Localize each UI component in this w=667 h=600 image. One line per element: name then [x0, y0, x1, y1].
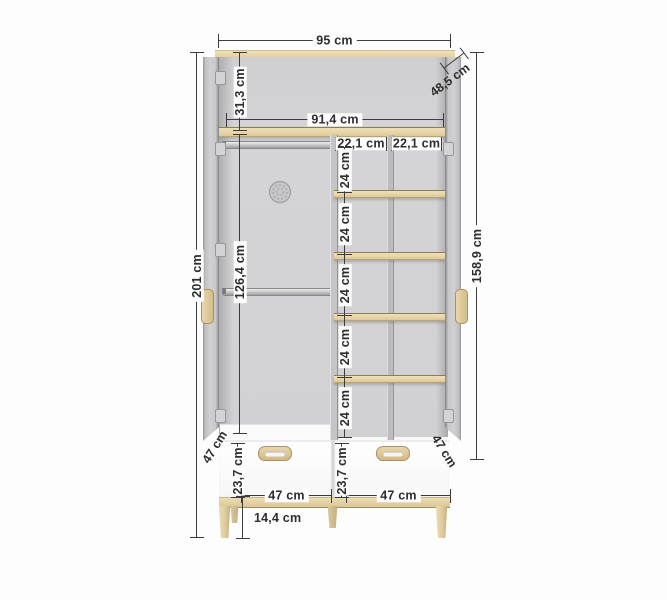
- dim-cubby-height-5-label: 24 cm: [338, 387, 351, 429]
- tick: [337, 254, 352, 255]
- drawer-handle-right: [376, 446, 410, 461]
- dim-drawer-height-right: 23,7 cm: [341, 444, 342, 497]
- hinge-icon: [215, 409, 226, 423]
- dim-overall-height-label: 201 cm: [190, 250, 203, 302]
- dim-drawer-height-left-label: 23,7 cm: [231, 446, 244, 495]
- dim-drawer-height-left: 23,7 cm: [237, 444, 238, 497]
- hinge-icon: [215, 142, 226, 156]
- dim-drawer-width-right-label: 47 cm: [376, 489, 420, 502]
- dim-drawer-width-left: 47 cm: [242, 495, 331, 496]
- dim-overall-width-label: 95 cm: [312, 34, 356, 47]
- dim-cubby-width-2: 22,1 cm: [392, 143, 441, 144]
- door-right-open: [445, 57, 461, 441]
- leg-front-left: [218, 506, 231, 538]
- leg-front-right: [435, 506, 448, 538]
- vertical-divider-middle: [387, 135, 394, 440]
- dim-top-section-height-label: 31,3 cm: [233, 66, 246, 117]
- leg-back-left: [230, 506, 239, 523]
- tick: [337, 315, 352, 316]
- dim-top-section-height: 31,3 cm: [239, 53, 240, 130]
- dim-overall-height: 201 cm: [196, 53, 197, 537]
- dim-cubby-height-2-label: 24 cm: [338, 203, 351, 245]
- hinge-icon: [443, 142, 454, 156]
- tick: [337, 377, 352, 378]
- dim-leg-height-label: 14,4 cm: [250, 511, 305, 524]
- dim-side-inner-height: 158,9 cm: [476, 53, 477, 459]
- handle-slot: [265, 451, 285, 456]
- wardrobe-dimension-diagram: 95 cm 91,4 cm 22,1 cm 22,1 cm 47 cm 47 c…: [0, 0, 667, 600]
- dim-cubby-height-4-label: 24 cm: [338, 326, 351, 368]
- dim-hanging-height-label: 126,4 cm: [233, 241, 246, 303]
- door-handle-right: [455, 289, 468, 324]
- dim-inner-width-label: 91,4 cm: [307, 113, 362, 126]
- tick: [337, 192, 352, 193]
- dim-cubby-width-1: 22,1 cm: [336, 143, 386, 144]
- handle-slot: [383, 451, 403, 456]
- dim-cubby-height-3-label: 24 cm: [338, 264, 351, 306]
- hinge-icon: [443, 409, 454, 423]
- drawer-handle-left: [258, 446, 292, 461]
- dim-drawer-width-left-label: 47 cm: [264, 489, 308, 502]
- dim-leg-height: 14,4 cm: [242, 497, 243, 538]
- dim-cubby-height-1-label: 24 cm: [338, 149, 351, 191]
- dim-cubby-width-2-label: 22,1 cm: [391, 137, 442, 150]
- leg-back-middle: [327, 506, 338, 528]
- dim-cubby-heights: 24 cm 24 cm 24 cm 24 cm 24 cm: [344, 148, 345, 437]
- dim-overall-width: 95 cm: [219, 40, 450, 41]
- hinge-icon: [215, 243, 226, 257]
- dim-drawer-width-right: 47 cm: [347, 495, 450, 496]
- dim-drawer-height-right-label: 23,7 cm: [335, 446, 348, 495]
- dim-hanging-height: 126,4 cm: [239, 135, 240, 433]
- dim-inner-width: 91,4 cm: [227, 119, 443, 120]
- vent-grommet-icon: [268, 180, 292, 204]
- hinge-icon: [215, 71, 226, 85]
- dim-side-inner-height-label: 158,9 cm: [470, 225, 483, 287]
